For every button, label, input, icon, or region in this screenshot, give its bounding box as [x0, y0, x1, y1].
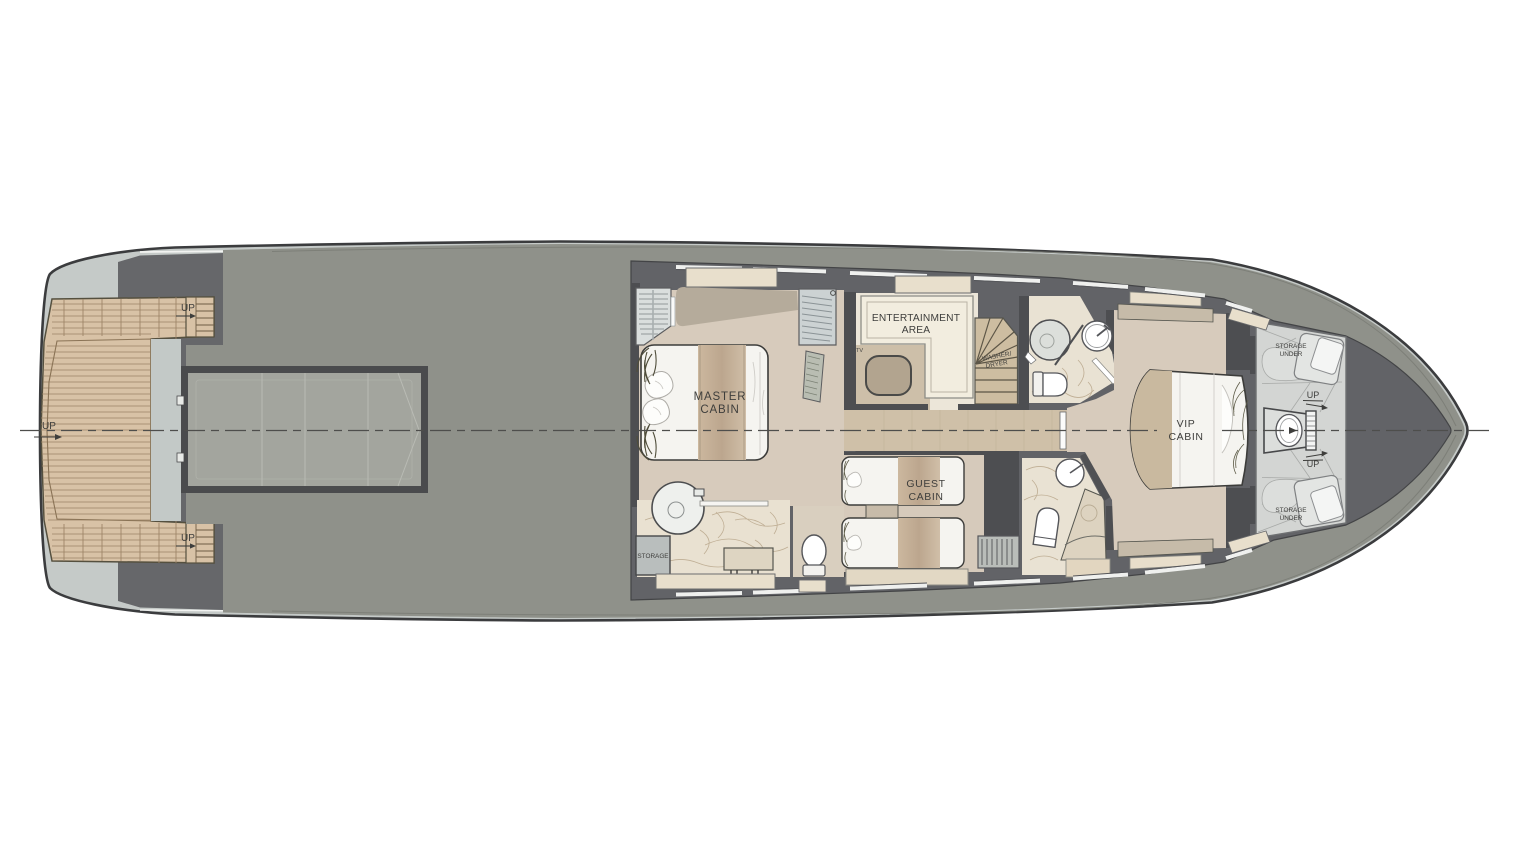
svg-text:VIP: VIP: [1177, 418, 1196, 430]
svg-text:ENTERTAINMENT: ENTERTAINMENT: [872, 313, 960, 324]
svg-text:UNDER: UNDER: [1280, 515, 1303, 522]
svg-text:UP: UP: [181, 533, 195, 544]
svg-text:TV: TV: [856, 348, 863, 354]
svg-text:STORAGE: STORAGE: [1275, 343, 1306, 350]
svg-text:CABIN: CABIN: [908, 491, 943, 503]
svg-text:AREA: AREA: [902, 325, 931, 336]
svg-text:MASTER: MASTER: [694, 391, 747, 403]
svg-text:CABIN: CABIN: [700, 404, 739, 416]
svg-text:UP: UP: [181, 303, 195, 314]
svg-text:CABIN: CABIN: [1168, 431, 1203, 443]
svg-text:STORAGE: STORAGE: [1275, 507, 1306, 514]
svg-text:UP: UP: [1307, 390, 1320, 400]
svg-text:GUEST: GUEST: [906, 478, 945, 490]
svg-text:STORAGE: STORAGE: [637, 553, 668, 560]
svg-text:UNDER: UNDER: [1280, 351, 1303, 358]
